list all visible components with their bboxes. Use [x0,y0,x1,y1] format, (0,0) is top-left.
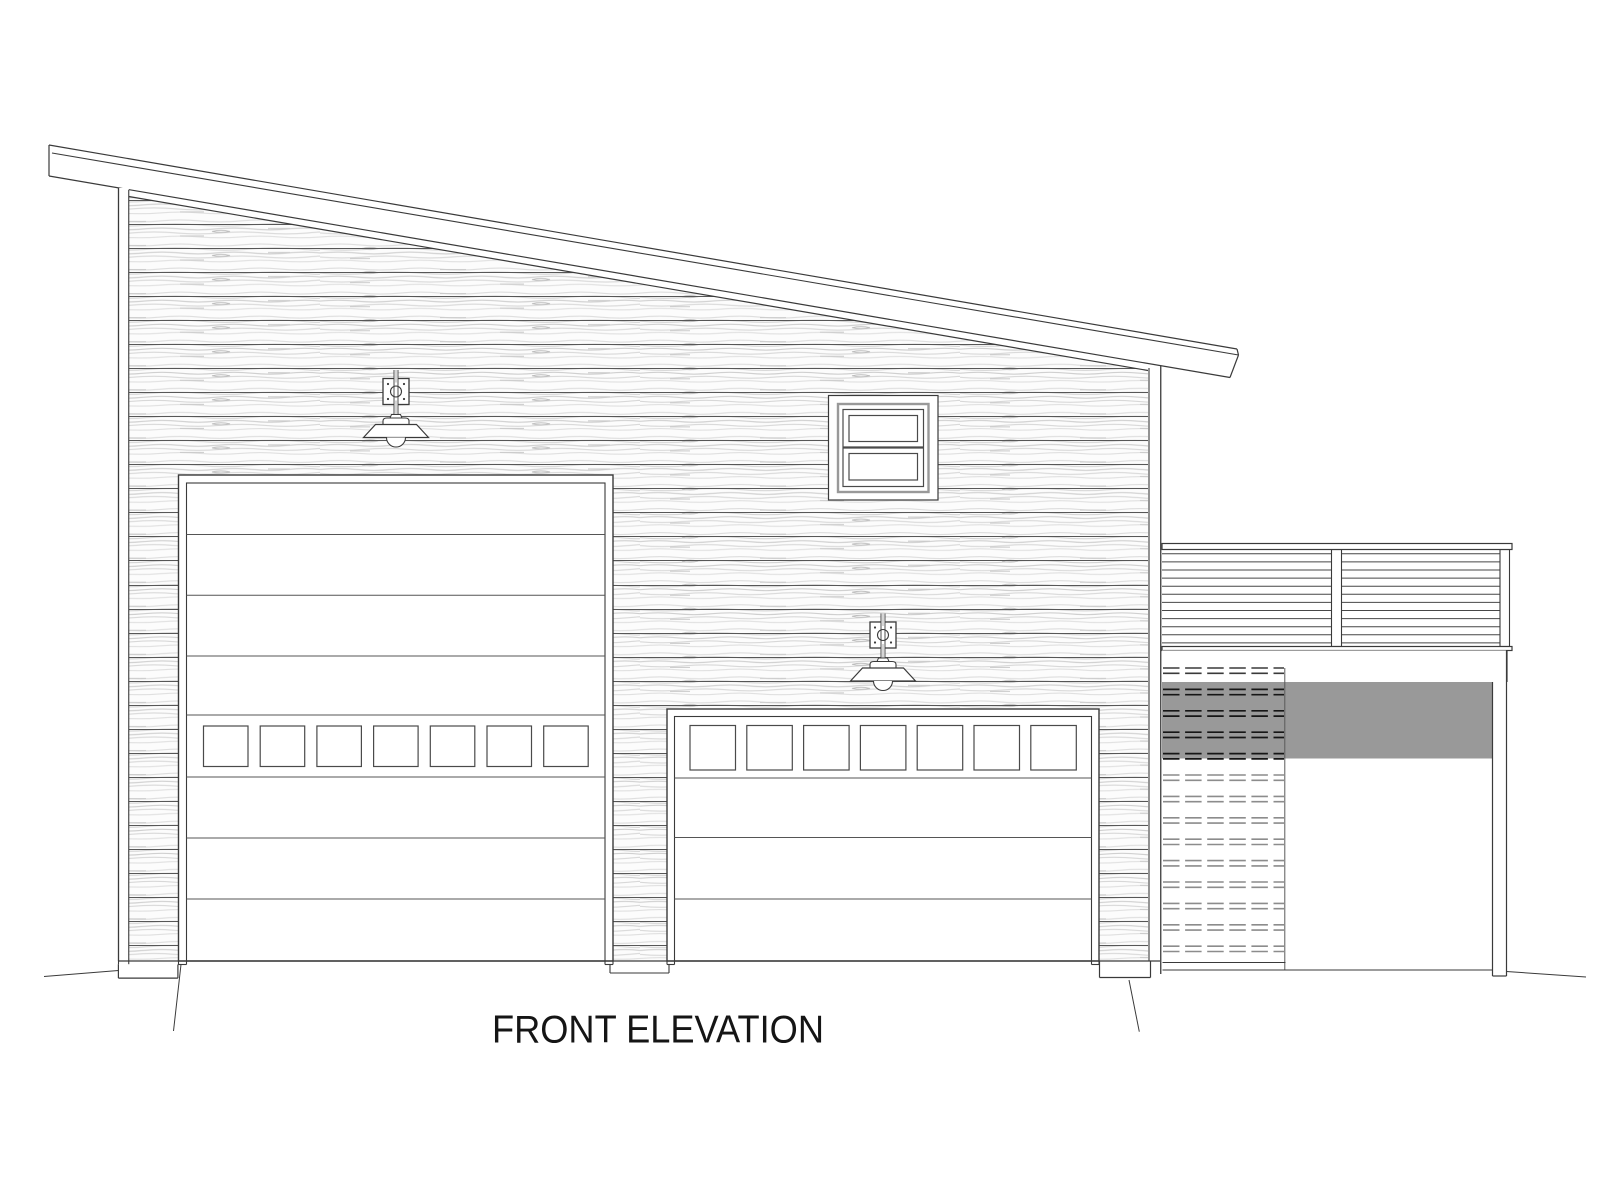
svg-text:FRONT ELEVATION: FRONT ELEVATION [492,1009,824,1052]
